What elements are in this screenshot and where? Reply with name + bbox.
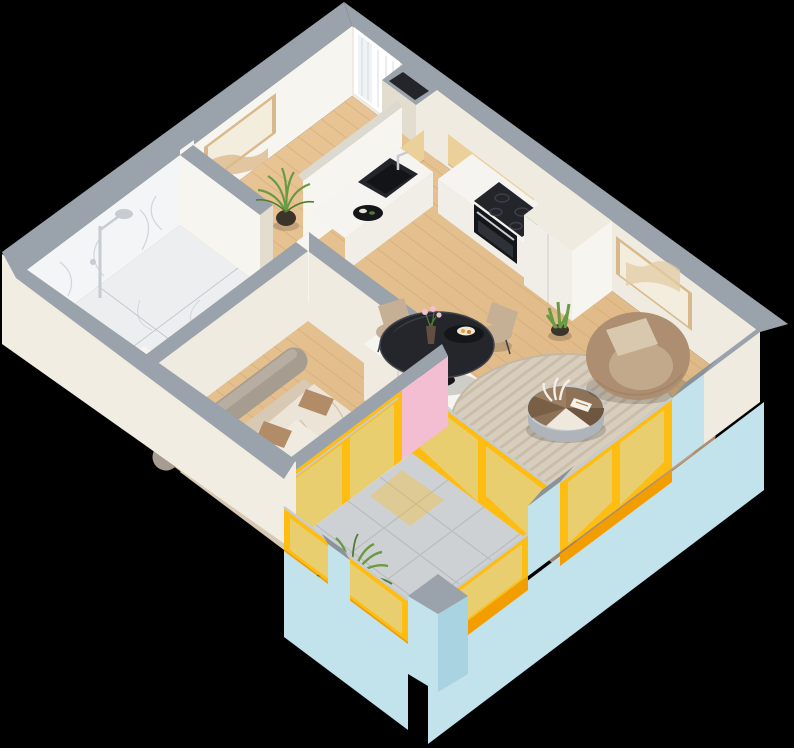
- apartment-isometric-scene: [0, 0, 794, 748]
- counter-tray: [353, 205, 383, 221]
- floor-plan-render: Isometric 3D floor plan — one-bedroom ap…: [0, 0, 794, 748]
- south-corner-pillar: [408, 574, 468, 692]
- armchair: [586, 312, 690, 404]
- place-setting: [444, 325, 484, 343]
- balustrade-pillar: [328, 544, 350, 636]
